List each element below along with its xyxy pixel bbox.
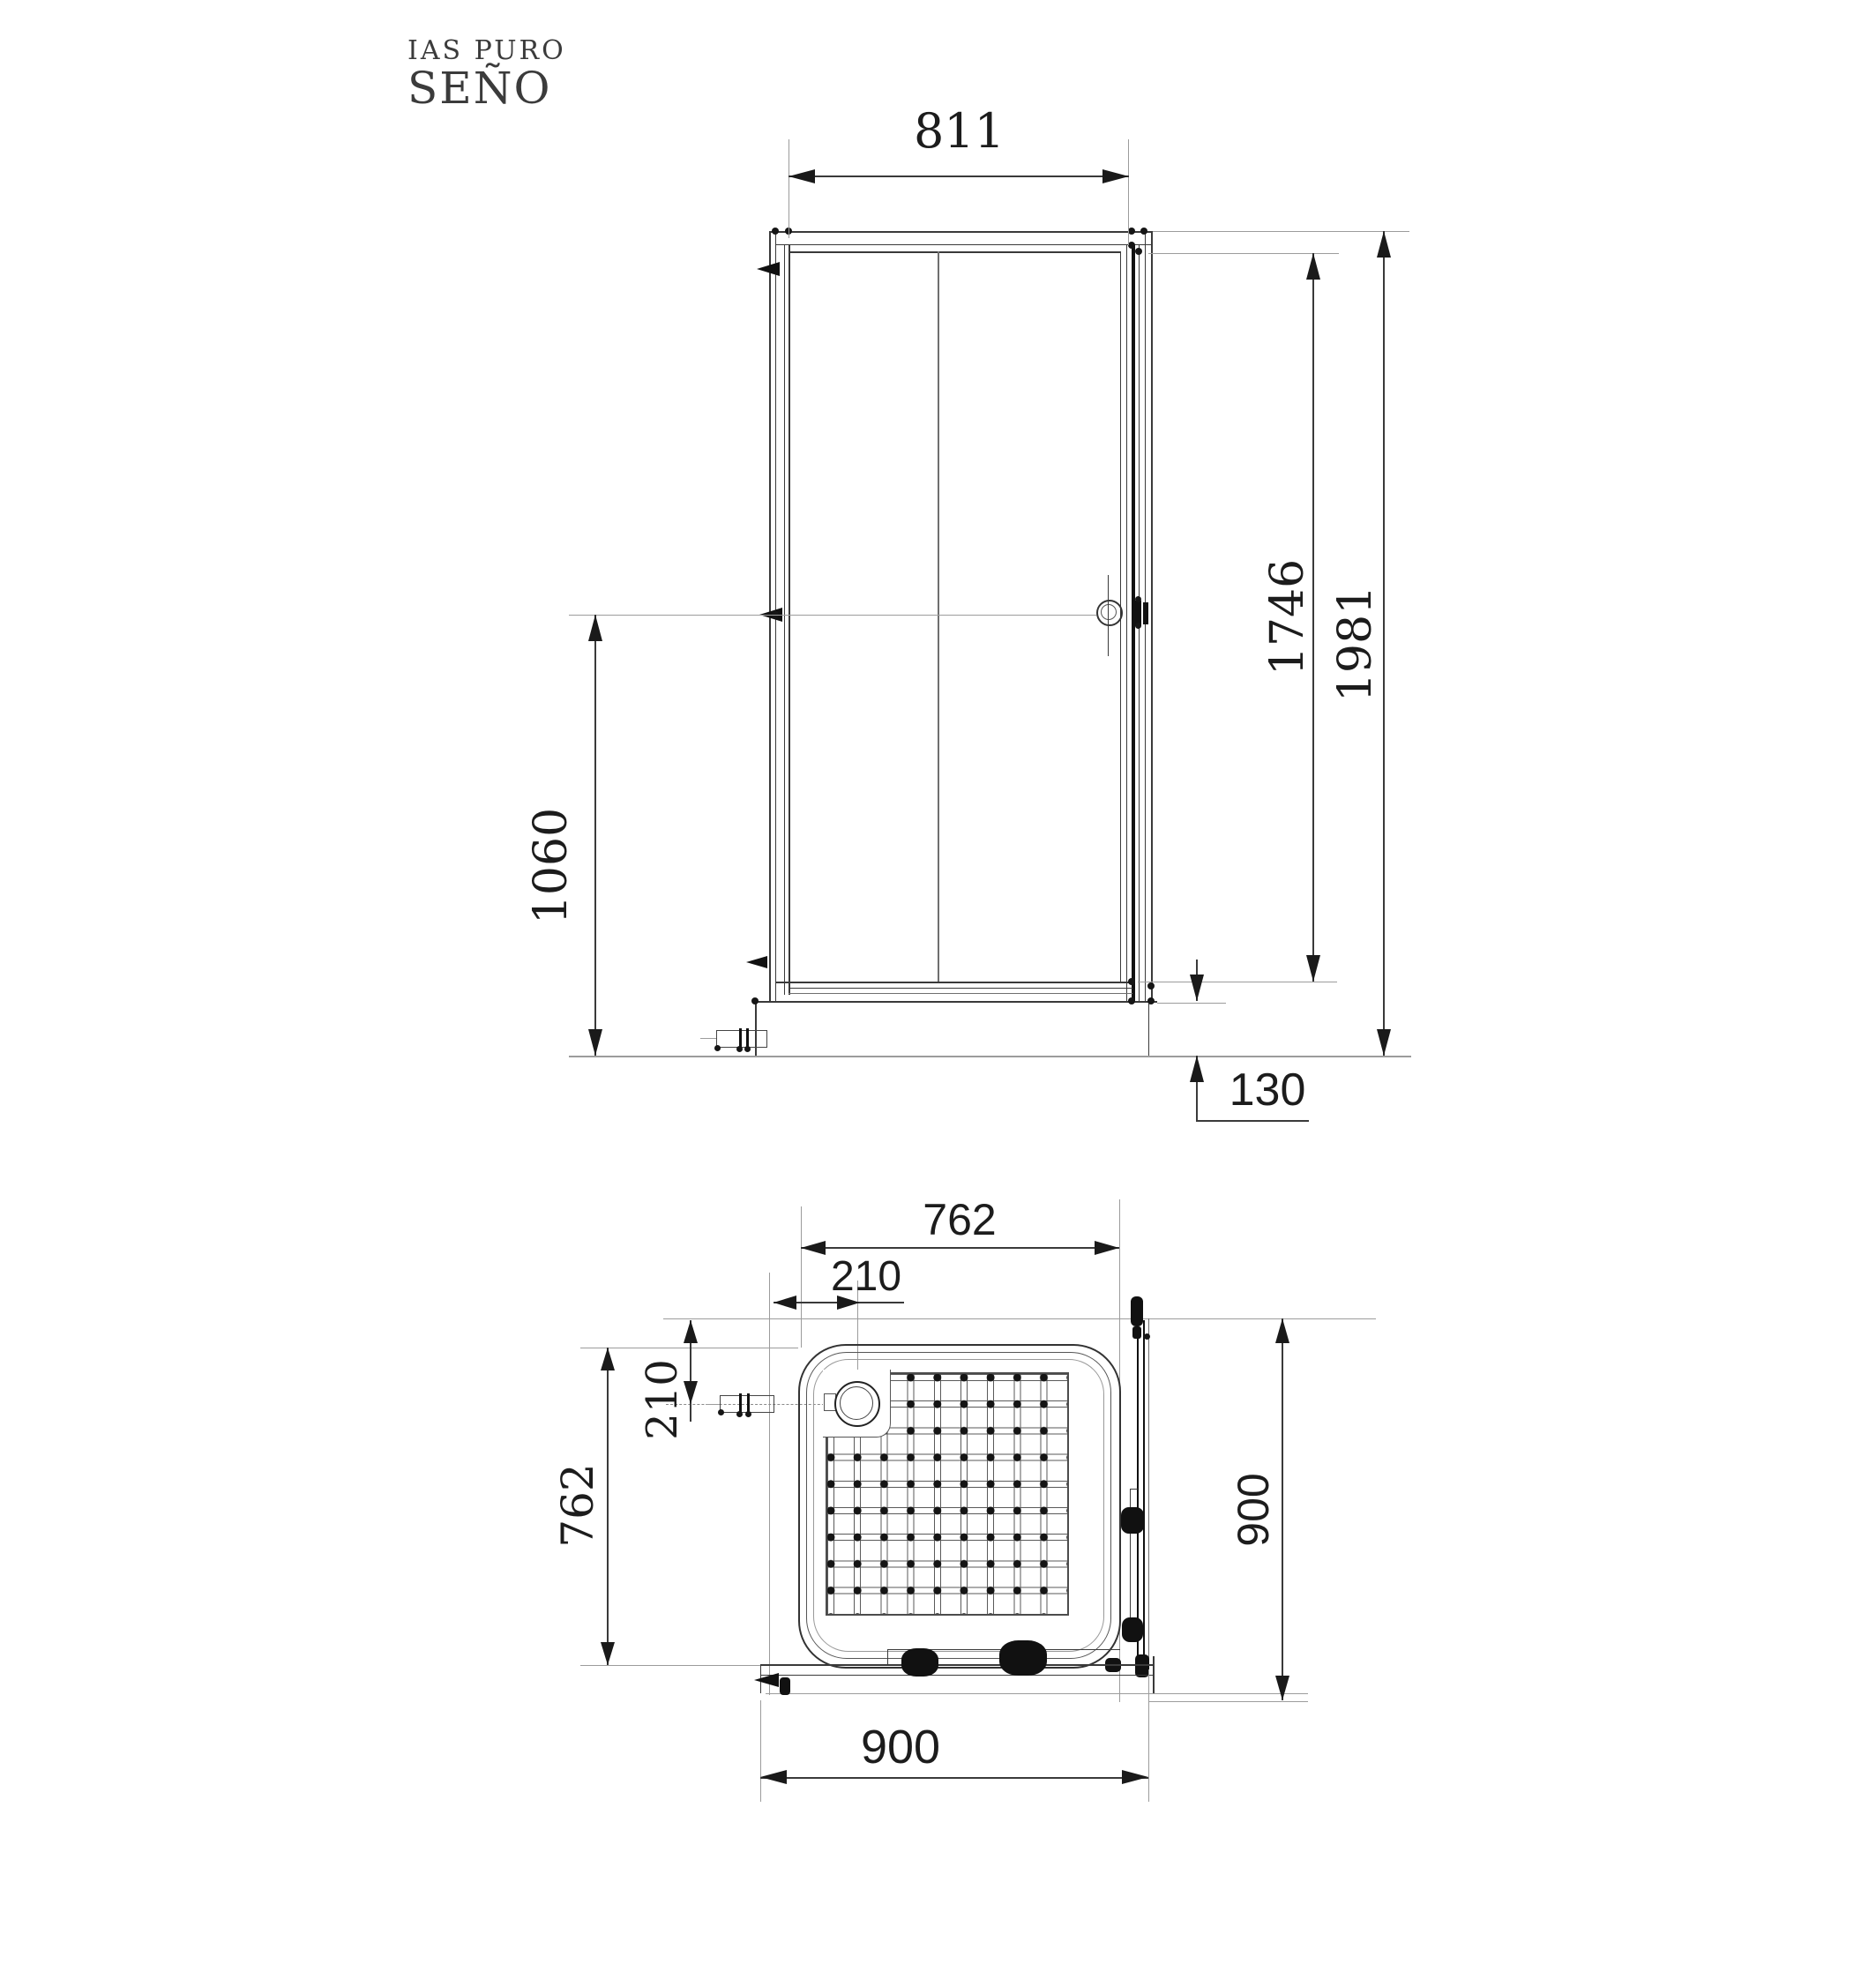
dim-label-tray-width: 762 <box>898 1196 1021 1243</box>
plan-track-endcap-block <box>780 1677 790 1695</box>
plan-ext-900-bottom <box>1148 1701 1308 1702</box>
frame-marker-top-icon <box>757 262 780 276</box>
dim-1981-line <box>1383 231 1385 1056</box>
plan-drain-inner <box>840 1386 873 1420</box>
dim-1981-arrow-up-icon <box>1377 231 1391 258</box>
dim-1060-ext-line <box>569 615 1096 616</box>
dim-900bottom-line <box>760 1777 1148 1779</box>
front-top-rail-inner <box>789 251 1120 253</box>
brand-logo-line2: SEÑO <box>407 63 566 114</box>
dim-900bottom-arrow-right-icon <box>1122 1770 1148 1784</box>
dim-900bottom-ext-left <box>760 1700 761 1802</box>
plan-door-glass-end <box>887 1649 888 1665</box>
front-foot-dot-3 <box>744 1046 751 1052</box>
dim-label-glass-height: 1746 <box>1263 556 1312 679</box>
dim-811-arrow-left-icon <box>789 169 815 183</box>
front-top-rail-mid <box>775 244 1152 245</box>
plan-track-endcap-icon <box>754 1673 779 1687</box>
front-tray-top <box>755 1001 1157 1003</box>
dim-130-leader <box>1196 1120 1309 1122</box>
front-bottom-rail-light <box>789 993 1132 994</box>
dim-900right-line <box>1282 1318 1283 1700</box>
plan-track-right-end <box>1153 1656 1155 1693</box>
dim-label-enclosure-width: 900 <box>834 1721 967 1773</box>
door-handle-dot-top <box>1135 596 1141 602</box>
dim-762left-arrow-down-icon <box>601 1642 615 1665</box>
front-right-frame-2 <box>1126 244 1127 1001</box>
plan-track-line-3 <box>766 1693 1308 1694</box>
dim-1981-ext-top <box>1153 231 1409 232</box>
junction-dot <box>1140 228 1147 235</box>
plan-clamp-top-foot <box>1132 1326 1141 1339</box>
plan-bracket-dot-3 <box>745 1411 751 1417</box>
dim-label-drain-offset-x: 210 <box>804 1254 928 1298</box>
dim-label-drain-offset-y: 210 <box>642 1351 683 1448</box>
plan-ext-tray-left <box>801 1206 802 1348</box>
dim-811-line <box>789 175 1129 177</box>
plan-clamp-low <box>1122 1617 1143 1642</box>
frame-marker-bottom-icon <box>746 956 767 968</box>
dim-762top-arrow-left-icon <box>801 1241 826 1255</box>
front-ground-line <box>569 1056 1411 1057</box>
plan-bracket-dot-2 <box>736 1411 743 1417</box>
junction-dot <box>1128 978 1135 985</box>
dim-210top-arrow-left-icon <box>774 1296 796 1310</box>
plan-side-panel-step-tick <box>1130 1489 1138 1490</box>
front-right-profile-outer <box>1151 231 1153 1001</box>
plan-roller-right <box>999 1640 1047 1676</box>
brand-logo-line1: IAS PURO <box>407 35 566 66</box>
dim-label-handle-height: 1060 <box>527 800 576 932</box>
plan-track-line-1 <box>760 1664 1153 1666</box>
plan-wall-bracket-tick <box>706 1404 720 1405</box>
plan-roller-left <box>901 1648 938 1677</box>
door-handle-dot-bottom <box>1135 623 1141 629</box>
front-bottom-rail-mid <box>789 988 1132 989</box>
dim-1746-ext-bottom <box>1138 982 1337 982</box>
dim-130-arrow-down-icon <box>1190 975 1204 1001</box>
dim-900bottom-ext-right <box>1148 1669 1149 1802</box>
junction-dot <box>1128 242 1135 249</box>
plan-side-panel-line-2 <box>1143 1320 1145 1677</box>
dim-130-arrow-up-icon <box>1190 1056 1204 1082</box>
dim-762left-line <box>607 1348 609 1665</box>
dim-1060-arrow-up-icon <box>588 615 602 641</box>
door-handle-mount-2 <box>1143 602 1148 624</box>
dim-label-tray-height: 130 <box>1215 1065 1320 1115</box>
junction-dot <box>1128 228 1135 235</box>
front-left-profile-inner <box>784 244 785 995</box>
dim-1746-arrow-down-icon <box>1306 955 1320 982</box>
plan-side-panel-line-3 <box>1148 1318 1149 1678</box>
junction-dot <box>751 997 759 1004</box>
dim-762top-arrow-right-icon <box>1095 1241 1119 1255</box>
plan-clamp-top <box>1131 1296 1143 1326</box>
front-foot-dot-1 <box>714 1045 721 1051</box>
brand-logo: IAS PURO SEÑO <box>407 35 566 114</box>
dim-900right-arrow-up-icon <box>1275 1318 1289 1343</box>
dim-811-ext-left <box>789 139 789 238</box>
front-left-glass-edge <box>789 244 790 995</box>
dim-762top-line <box>801 1247 1119 1249</box>
junction-dot <box>1128 997 1135 1004</box>
front-glass-divider <box>938 251 939 982</box>
dim-210left-arrow-up-icon <box>684 1320 698 1343</box>
junction-dot <box>1147 997 1155 1004</box>
front-foot-tick <box>700 1038 716 1039</box>
plan-bracket-dot-1 <box>718 1409 724 1415</box>
junction-dot <box>1147 982 1155 989</box>
dim-811-ext-right <box>1128 139 1129 245</box>
plan-ext-left-edge <box>769 1273 770 1695</box>
dim-900bottom-arrow-left-icon <box>760 1770 787 1784</box>
dim-130-ext-top <box>1157 1003 1226 1004</box>
front-foot-dot-2 <box>736 1046 743 1052</box>
technical-drawing-sheet: IAS PURO SEÑO <box>0 0 1876 1979</box>
dim-811-arrow-right-icon <box>1102 169 1129 183</box>
dim-label-total-height: 1981 <box>1331 582 1380 706</box>
dim-1981-arrow-down-icon <box>1377 1029 1391 1056</box>
door-handle-crosshair <box>1108 575 1109 656</box>
junction-dot <box>772 228 779 235</box>
plan-track-line-2 <box>760 1675 1153 1676</box>
plan-clamp-mid <box>1121 1507 1144 1534</box>
dim-label-tray-depth: 762 <box>554 1453 602 1558</box>
dim-900right-arrow-down-icon <box>1275 1676 1289 1700</box>
plan-ext-wall-top <box>663 1318 1376 1319</box>
front-top-rail-outer <box>769 231 1152 233</box>
door-handle-inner-ring <box>1101 604 1117 620</box>
front-foot-bracket <box>716 1030 767 1048</box>
dim-762left-arrow-up-icon <box>601 1348 615 1370</box>
plan-clamp-top-dot <box>1144 1333 1150 1340</box>
junction-dot <box>1135 248 1142 255</box>
dim-1746-arrow-up-icon <box>1306 253 1320 280</box>
dim-1060-line <box>594 615 596 1056</box>
front-bottom-rail-dark <box>775 982 1132 983</box>
dim-1060-arrow-down-icon <box>588 1029 602 1056</box>
dim-label-door-width: 811 <box>895 104 1023 157</box>
front-tray-right <box>1148 1001 1149 1056</box>
dim-label-enclosure-depth: 900 <box>1230 1448 1276 1572</box>
